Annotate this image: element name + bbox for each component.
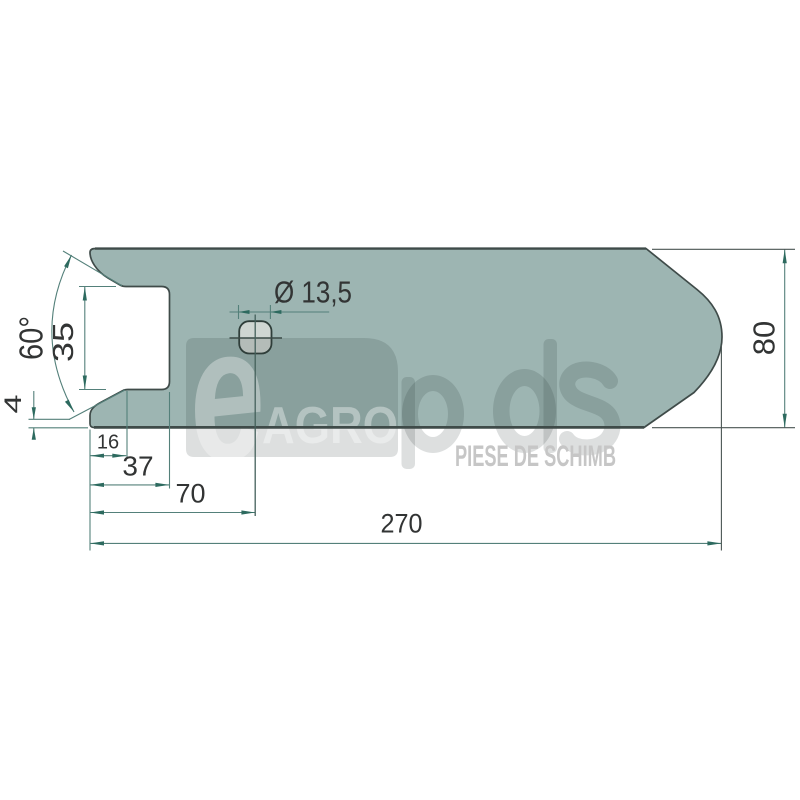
svg-text:PIESE DE SCHIMB: PIESE DE SCHIMB — [455, 440, 616, 473]
svg-text:35: 35 — [48, 322, 80, 362]
svg-text:16: 16 — [97, 432, 119, 454]
svg-text:60°: 60° — [13, 316, 50, 360]
svg-text:Ø 13,5: Ø 13,5 — [274, 275, 352, 310]
svg-text:270: 270 — [381, 509, 423, 539]
svg-text:70: 70 — [175, 479, 205, 509]
svg-text:4: 4 — [0, 395, 27, 414]
svg-text:37: 37 — [122, 451, 153, 482]
svg-text:80: 80 — [747, 321, 782, 355]
